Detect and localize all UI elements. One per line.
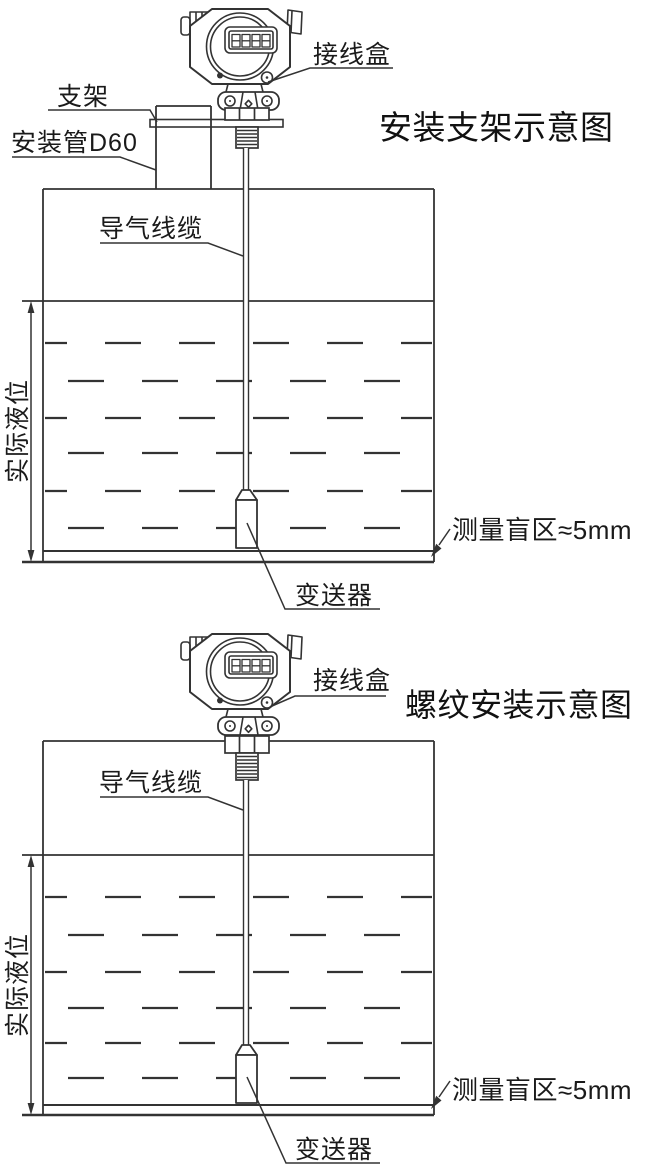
device-head-top [181, 9, 302, 110]
diagram-title-bracket: 安装支架示意图 [379, 111, 614, 144]
tank-top-diagram [22, 189, 434, 562]
transmitter-label-top: 变送器 [295, 583, 373, 609]
air-cable-label-bottom: 导气线缆 [99, 770, 203, 796]
threaded-nipple-top [236, 127, 258, 148]
junction-box-label-bottom: 接线盒 [313, 668, 391, 694]
mounting-pipe [156, 106, 211, 189]
blind-zone-label-top: 测量盲区≈5mm [452, 517, 632, 544]
air-cable-top [244, 148, 249, 490]
transmitter-label-bottom: 变送器 [295, 1137, 373, 1163]
air-cable-bottom [244, 780, 249, 1045]
threaded-nipple-bottom [236, 753, 258, 780]
mounting-pipe-label: 安装管D60 [11, 130, 138, 156]
bracket-label: 支架 [57, 84, 109, 110]
air-cable-label-top: 导气线缆 [99, 216, 203, 242]
probe-bottom [236, 1045, 257, 1103]
device-head-bottom [181, 634, 302, 735]
tank-bottom-diagram [22, 741, 434, 1115]
actual-level-label-top: 实际液位 [6, 379, 31, 483]
diagram-title-threaded: 螺纹安装示意图 [405, 689, 633, 721]
actual-level-label-bottom: 实际液位 [6, 933, 31, 1037]
installation-schematic: 接线盒 支架 安装管D60 安装支架示意图 导气线缆 实际液位 测量盲区≈5mm… [0, 0, 650, 1171]
junction-box-label-top: 接线盒 [313, 42, 391, 68]
blind-zone-label-bottom: 测量盲区≈5mm [452, 1077, 632, 1104]
hex-nut-bottom [225, 736, 269, 753]
hex-nut-top [225, 108, 269, 120]
